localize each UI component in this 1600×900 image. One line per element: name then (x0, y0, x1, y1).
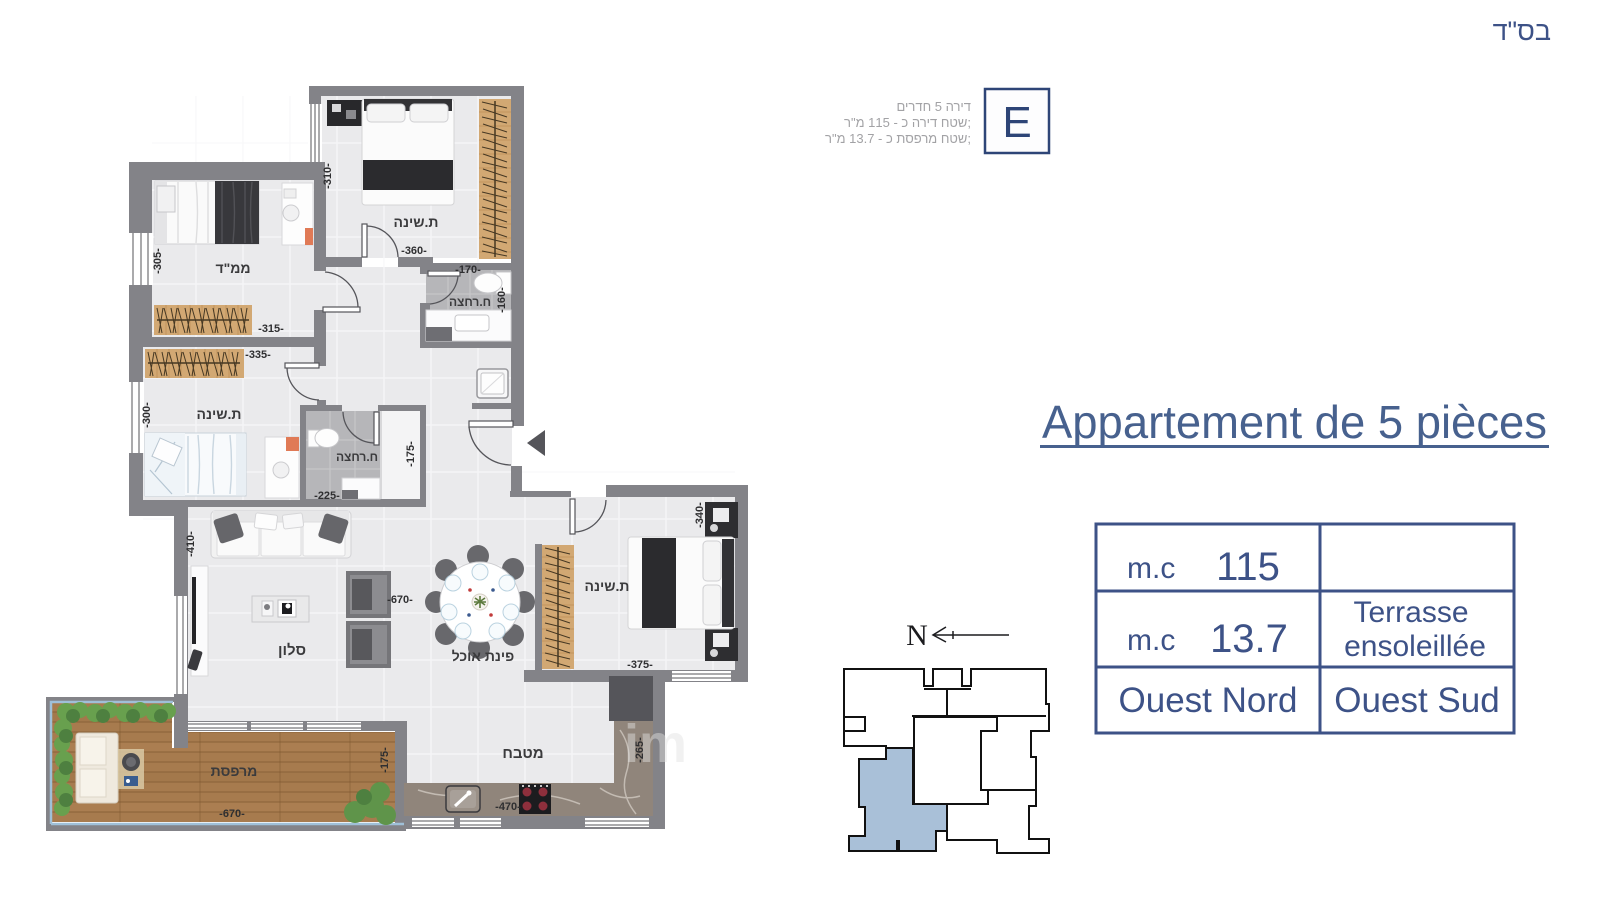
svg-text:Terrasse: Terrasse (1353, 596, 1468, 629)
svg-text:פינת אוכל: פינת אוכל (452, 648, 515, 664)
svg-text:שטח דירה כ - 115 מ"ר;: שטח דירה כ - 115 מ"ר; (844, 115, 971, 130)
svg-text:ח.רחצה: ח.רחצה (449, 295, 491, 309)
svg-text:-670-: -670- (387, 594, 413, 606)
svg-text:N: N (906, 619, 928, 652)
svg-text:-375-: -375- (627, 659, 653, 671)
svg-text:Ouest Nord: Ouest Nord (1119, 681, 1298, 720)
svg-text:115: 115 (1216, 545, 1280, 589)
svg-text:-175-: -175- (405, 441, 417, 467)
svg-text:-360-: -360- (401, 245, 427, 257)
svg-text:-315-: -315- (258, 323, 284, 335)
svg-text:-310-: -310- (322, 163, 334, 189)
svg-text:m.c: m.c (1127, 552, 1175, 585)
svg-text:בס"ד: בס"ד (1493, 16, 1551, 46)
svg-text:-300-: -300- (141, 402, 153, 428)
svg-text:m.c: m.c (1127, 624, 1175, 657)
svg-text:ת.שינה: ת.שינה (394, 214, 439, 230)
svg-text:13.7: 13.7 (1210, 617, 1288, 661)
svg-text:E: E (1002, 98, 1031, 147)
svg-text:ת.שינה: ת.שינה (585, 578, 630, 594)
svg-text:שטח מרפסת כ - 13.7 מ"ר;: שטח מרפסת כ - 13.7 מ"ר; (825, 131, 971, 146)
svg-text:-160-: -160- (496, 287, 508, 313)
svg-text:-305-: -305- (152, 248, 164, 274)
svg-text:מרפסת: מרפסת (211, 763, 258, 779)
svg-text:-340-: -340- (694, 502, 706, 528)
svg-text:ממ"ד: ממ"ד (215, 260, 250, 276)
svg-text:-335-: -335- (245, 349, 271, 361)
svg-text:Ouest Sud: Ouest Sud (1334, 681, 1499, 720)
svg-text:-225-: -225- (314, 490, 340, 502)
svg-text:-670-: -670- (219, 808, 245, 820)
svg-text:-470-: -470- (495, 801, 521, 813)
svg-text:ת.שינה: ת.שינה (197, 406, 242, 422)
svg-text:-170-: -170- (455, 264, 481, 276)
svg-text:סלון: סלון (278, 642, 306, 659)
svg-text:-175-: -175- (379, 747, 391, 773)
svg-text:-410-: -410- (185, 531, 197, 557)
svg-text:דירה 5 חדרים: דירה 5 חדרים (897, 99, 972, 114)
svg-text:ח.רחצה: ח.רחצה (336, 450, 378, 464)
svg-text:Appartement de 5 pièces: Appartement de 5 pièces (1042, 396, 1547, 448)
svg-text:-265-: -265- (634, 737, 646, 763)
svg-text:ensoleillée: ensoleillée (1344, 630, 1486, 663)
svg-text:מטבח: מטבח (502, 745, 543, 762)
